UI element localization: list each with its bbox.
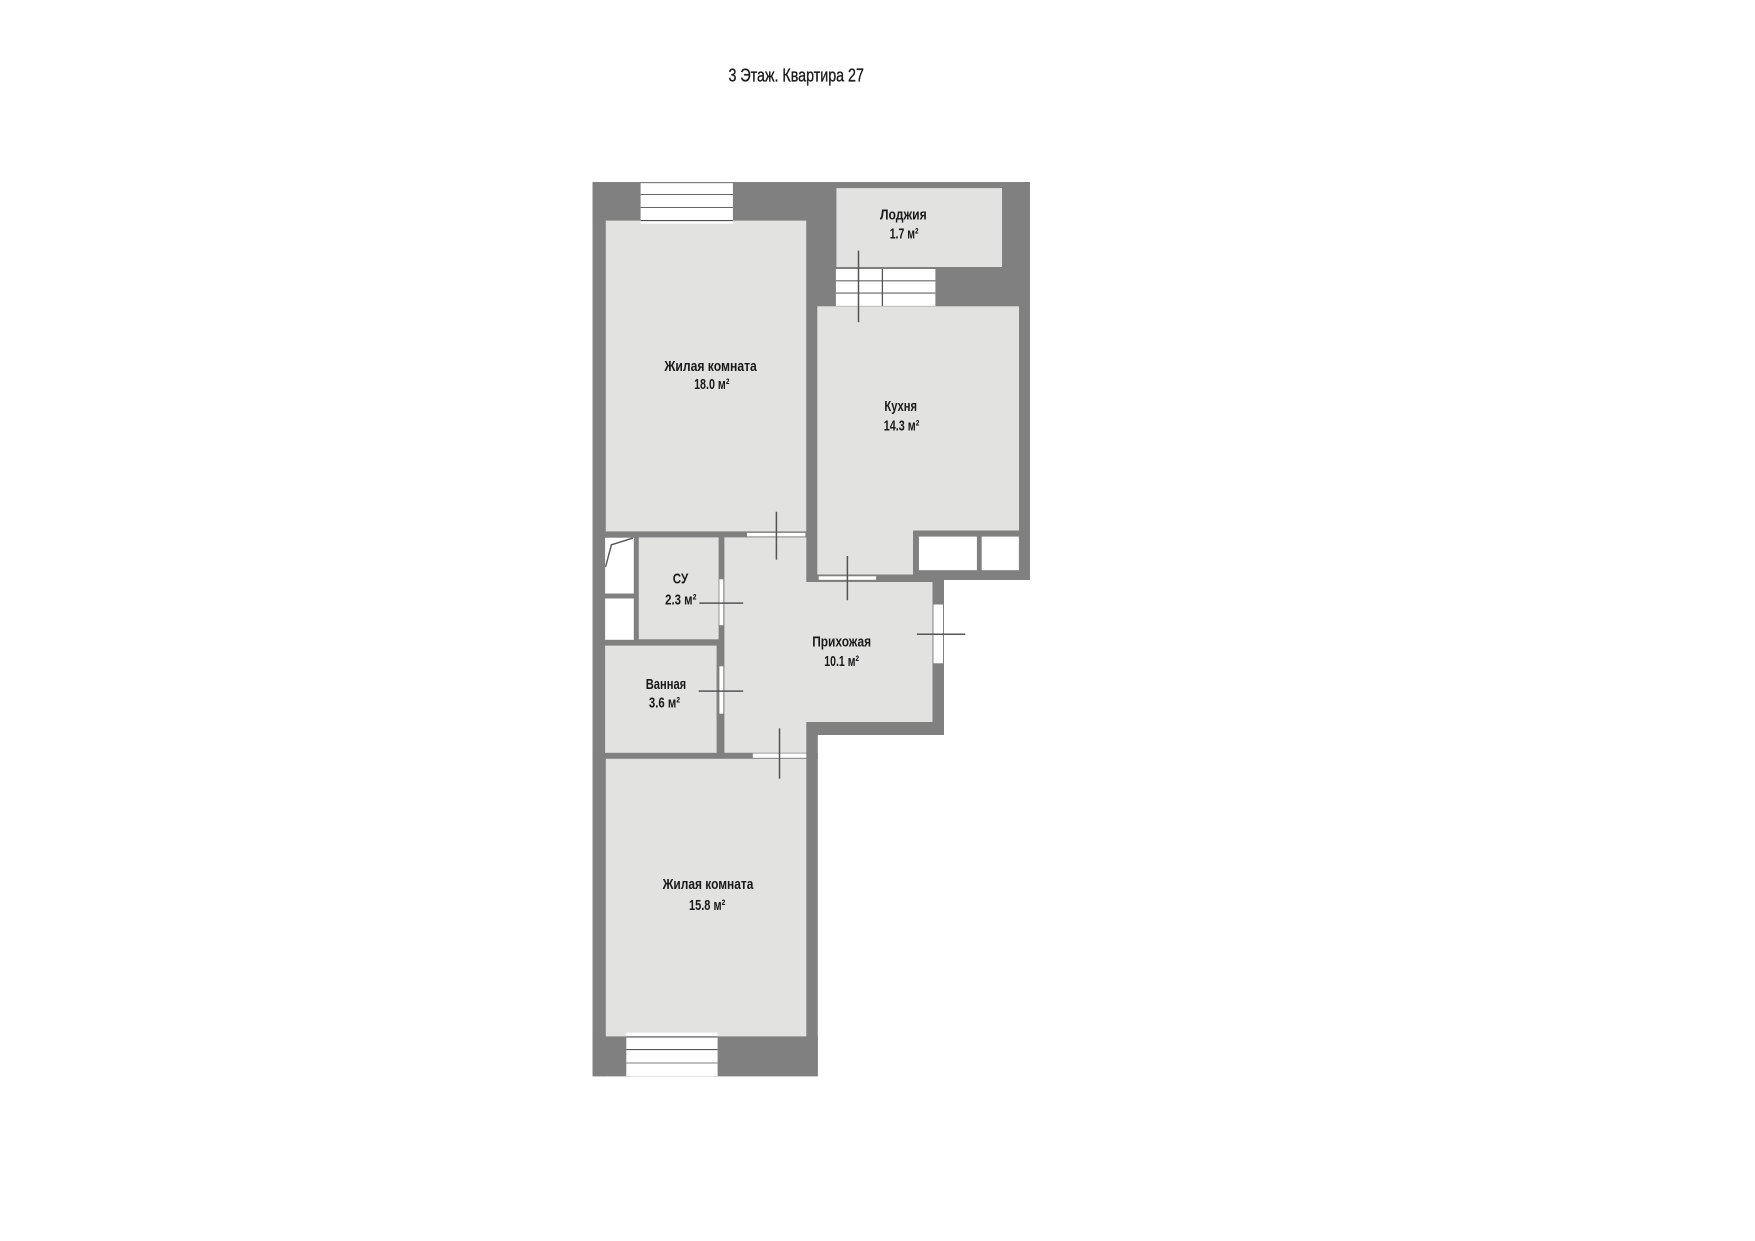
svg-text:14.3 м²: 14.3 м²: [884, 418, 920, 435]
svg-text:3 Этаж. Квартира 27: 3 Этаж. Квартира 27: [729, 65, 864, 86]
svg-text:1.7 м²: 1.7 м²: [890, 225, 919, 242]
svg-text:Прихожая: Прихожая: [812, 634, 871, 651]
svg-text:Лоджия: Лоджия: [880, 207, 927, 224]
svg-text:2.3 м²: 2.3 м²: [665, 592, 696, 609]
svg-text:3.6 м²: 3.6 м²: [649, 695, 680, 712]
svg-text:10.1 м²: 10.1 м²: [824, 653, 859, 670]
svg-text:Жилая комната: Жилая комната: [664, 358, 758, 375]
svg-text:18.0 м²: 18.0 м²: [694, 376, 729, 393]
svg-text:15.8 м²: 15.8 м²: [689, 897, 725, 914]
svg-text:Ванная: Ванная: [646, 676, 687, 693]
svg-text:Жилая комната: Жилая комната: [662, 876, 754, 893]
svg-text:СУ: СУ: [673, 571, 689, 588]
svg-text:Кухня: Кухня: [884, 398, 917, 415]
